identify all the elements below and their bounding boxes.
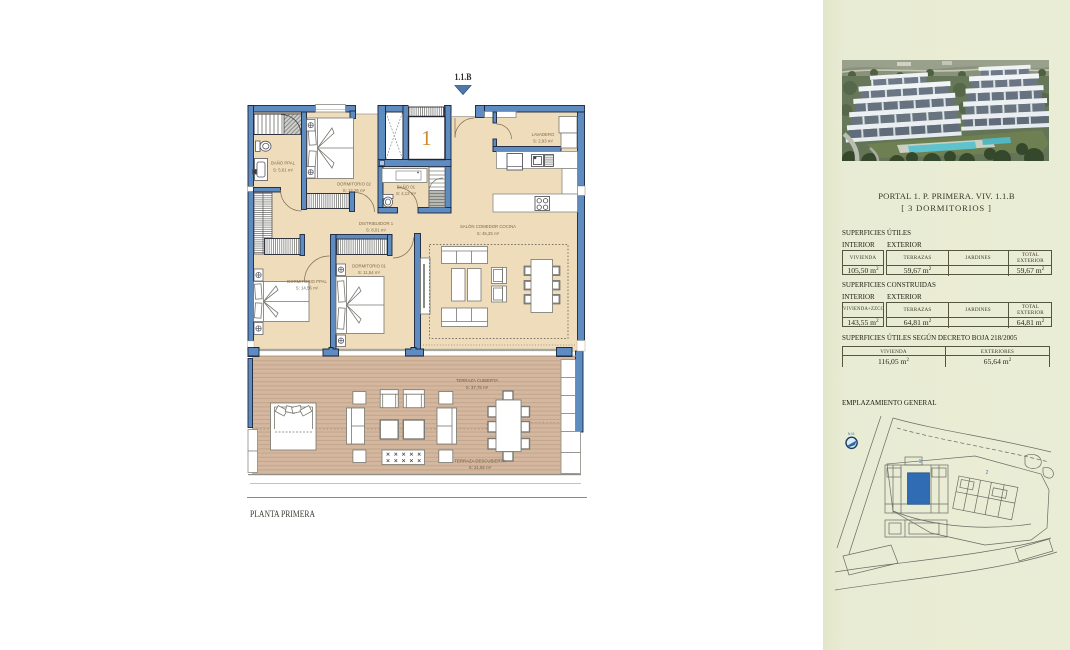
svg-text:BAÑO PPAL: BAÑO PPAL <box>271 161 296 166</box>
svg-text:DISTRIBUIDOR 1: DISTRIBUIDOR 1 <box>359 221 394 226</box>
svg-text:DORMITORIO 02: DORMITORIO 02 <box>337 182 371 187</box>
svg-text:1: 1 <box>919 459 922 465</box>
svg-text:1: 1 <box>421 126 432 150</box>
svg-text:PLANTA PRIMERA: PLANTA PRIMERA <box>250 510 315 520</box>
svg-text:S: 45,25 m²: S: 45,25 m² <box>477 231 500 236</box>
svg-text:S: 11,54 m²: S: 11,54 m² <box>358 270 381 275</box>
svg-text:S: 37,75 m²: S: 37,75 m² <box>466 385 489 390</box>
svg-text:S: 2,93 m²: S: 2,93 m² <box>533 139 554 144</box>
svg-text:SALÓN COMEDOR COCINA: SALÓN COMEDOR COCINA <box>460 224 516 229</box>
svg-text:BAÑO 01: BAÑO 01 <box>397 185 416 190</box>
svg-text:TERRAZA DESCUBIERTA: TERRAZA DESCUBIERTA <box>454 459 505 464</box>
svg-text:DORMITORIO PPAL: DORMITORIO PPAL <box>287 279 327 284</box>
svg-text:TERRAZA CUBIERTA: TERRAZA CUBIERTA <box>456 378 498 383</box>
svg-text:S: 5,61 m²: S: 5,61 m² <box>273 168 294 173</box>
svg-text:N.M.: N.M. <box>848 432 856 436</box>
svg-text:S: 14,56 m²: S: 14,56 m² <box>296 286 319 291</box>
svg-text:LAVADERO: LAVADERO <box>532 132 555 137</box>
svg-text:2: 2 <box>986 470 989 476</box>
svg-text:S: 21,92 m²: S: 21,92 m² <box>469 465 492 470</box>
svg-text:DORMITORIO 01: DORMITORIO 01 <box>352 264 386 269</box>
svg-text:1.1.B: 1.1.B <box>455 73 473 83</box>
svg-text:S: 8,01 m²: S: 8,01 m² <box>366 228 387 233</box>
svg-text:S: 4,12 m²: S: 4,12 m² <box>396 191 417 196</box>
